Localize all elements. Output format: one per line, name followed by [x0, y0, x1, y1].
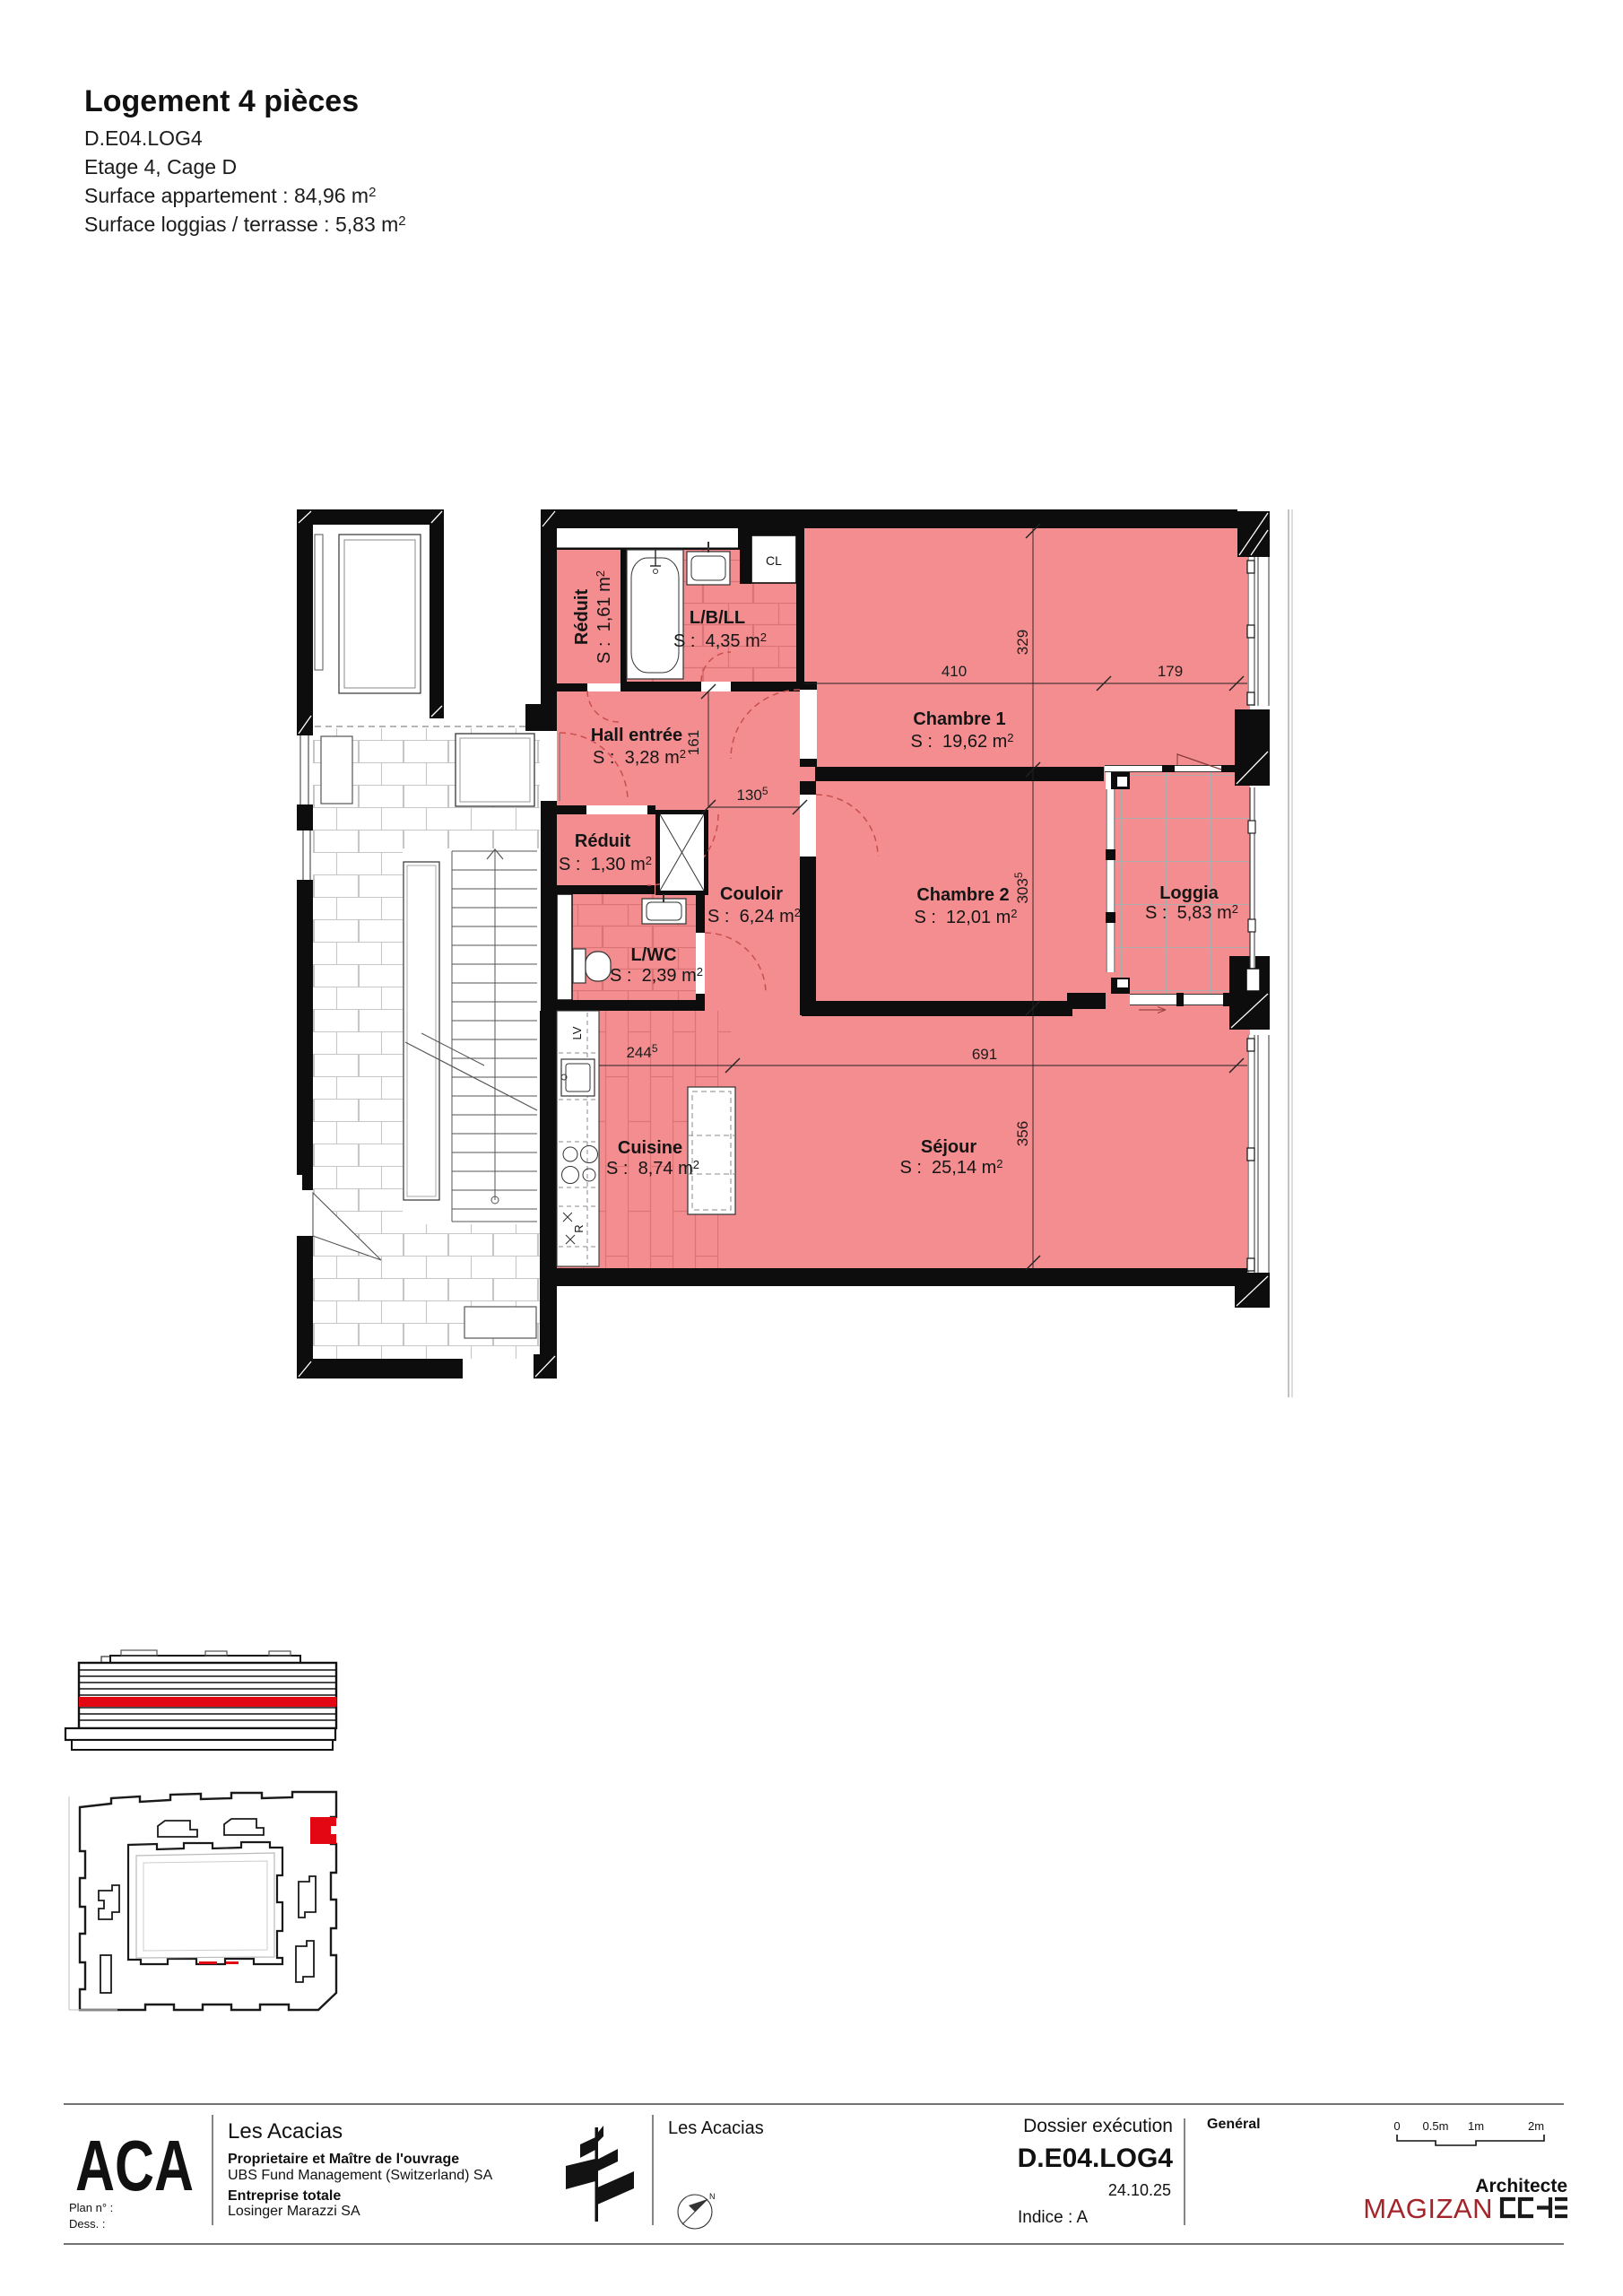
svg-text:Chambre 2: Chambre 2	[916, 885, 1009, 905]
svg-text:D.E04.LOG4: D.E04.LOG4	[84, 126, 203, 150]
svg-text:LV: LV	[570, 1026, 584, 1039]
svg-text:S : 5,83 m2: S : 5,83 m2	[1145, 902, 1238, 923]
svg-text:MAGIZAN: MAGIZAN	[1363, 2193, 1493, 2224]
svg-text:N: N	[709, 2192, 716, 2201]
svg-text:Cuisine: Cuisine	[618, 1138, 682, 1158]
svg-text:1m: 1m	[1468, 2119, 1484, 2133]
svg-text:R: R	[572, 1224, 586, 1232]
svg-text:Réduit: Réduit	[572, 589, 592, 646]
svg-text:S : 2,39 m2: S : 2,39 m2	[610, 965, 703, 986]
svg-text:179: 179	[1158, 663, 1183, 680]
svg-text:S : 25,14 m2: S : 25,14 m2	[899, 1157, 1002, 1178]
svg-text:S : 6,24 m2: S : 6,24 m2	[707, 906, 801, 926]
svg-text:24.10.25: 24.10.25	[1108, 2181, 1171, 2199]
svg-text:Séjour: Séjour	[921, 1137, 976, 1157]
svg-text:S : 4,35 m2: S : 4,35 m2	[673, 631, 767, 651]
svg-text:Loggia: Loggia	[1159, 883, 1219, 903]
svg-text:D.E04.LOG4: D.E04.LOG4	[1018, 2144, 1174, 2173]
svg-text:Losinger Marazzi SA: Losinger Marazzi SA	[228, 2204, 360, 2219]
svg-text:329: 329	[1014, 630, 1031, 655]
svg-text:Dess. :: Dess. :	[69, 2217, 105, 2231]
svg-text:L/WC: L/WC	[630, 945, 676, 965]
svg-text:Les Acacias: Les Acacias	[228, 2119, 343, 2144]
svg-text:691: 691	[972, 1046, 997, 1063]
svg-text:410: 410	[942, 663, 967, 680]
svg-text:Chambre 1: Chambre 1	[913, 709, 1005, 729]
svg-text:L/B/LL: L/B/LL	[690, 608, 745, 628]
svg-text:Genéral: Genéral	[1207, 2117, 1261, 2132]
svg-text:Entreprise totale: Entreprise totale	[228, 2188, 341, 2204]
svg-text:S : 19,62 m2: S : 19,62 m2	[910, 731, 1013, 752]
svg-text:Proprietaire et Maître de l'ou: Proprietaire et Maître de l'ouvrage	[228, 2152, 459, 2167]
svg-text:ACA: ACA	[75, 2126, 194, 2205]
svg-text:Etage 4, Cage D: Etage 4, Cage D	[84, 155, 237, 178]
svg-text:0.5m: 0.5m	[1423, 2119, 1449, 2133]
svg-text:Surface loggias / terrasse : 5: Surface loggias / terrasse : 5,83 m2	[84, 213, 406, 236]
svg-text:S : 12,01 m2: S : 12,01 m2	[914, 907, 1017, 927]
svg-text:S : 8,74 m2: S : 8,74 m2	[606, 1158, 699, 1178]
svg-text:S : 1,30 m2: S : 1,30 m2	[559, 854, 652, 874]
svg-text:S : 3,28 m2: S : 3,28 m2	[593, 747, 686, 768]
svg-text:Logement 4 pièces: Logement 4 pièces	[84, 84, 359, 118]
svg-text:Dossier exécution: Dossier exécution	[1023, 2116, 1173, 2136]
svg-text:Indice : A: Indice : A	[1018, 2208, 1088, 2227]
svg-text:Hall entrée: Hall entrée	[591, 726, 682, 745]
svg-text:0: 0	[1393, 2119, 1400, 2133]
svg-text:2m: 2m	[1528, 2119, 1544, 2133]
svg-text:Plan n° :: Plan n° :	[69, 2201, 113, 2214]
svg-text:Surface appartement : 84,96 m2: Surface appartement : 84,96 m2	[84, 184, 376, 207]
svg-text:Réduit: Réduit	[575, 831, 631, 851]
svg-text:356: 356	[1014, 1121, 1031, 1146]
svg-text:CL: CL	[766, 553, 782, 568]
svg-text:Couloir: Couloir	[720, 884, 783, 904]
svg-text:Les Acacias: Les Acacias	[668, 2118, 764, 2138]
svg-text:UBS Fund Management (Switzerla: UBS Fund Management (Switzerland) SA	[228, 2168, 493, 2183]
svg-text:161: 161	[685, 730, 702, 755]
svg-text:S : 1,61 m2: S : 1,61 m2	[594, 570, 614, 664]
